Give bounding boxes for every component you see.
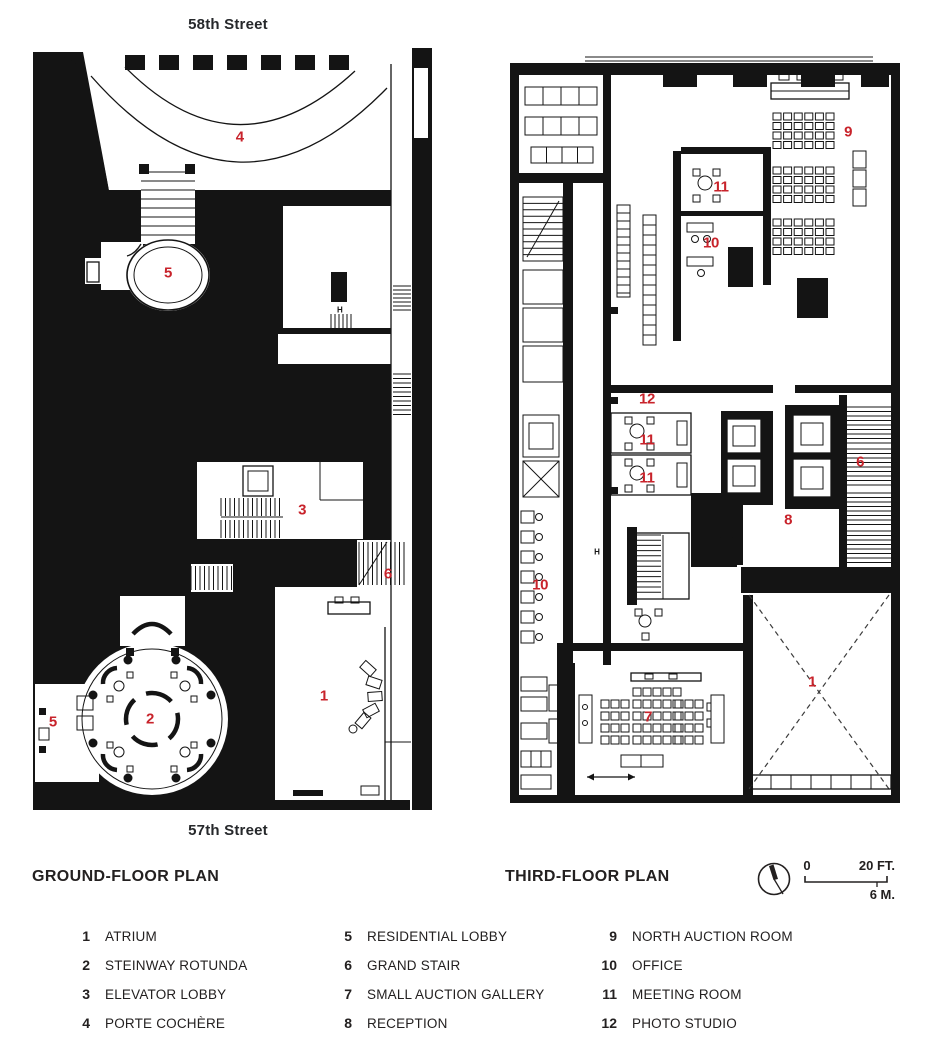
legend-item-number: 7 (330, 986, 352, 1002)
legend-item-label: PHOTO STUDIO (632, 1016, 737, 1031)
legend-item: 12PHOTO STUDIO (595, 1015, 793, 1044)
legend-item: 6GRAND STAIR (330, 957, 545, 986)
street-label-57th: 57th Street (118, 822, 338, 839)
scale-bar: 0 20 FT. 6 M. (750, 848, 920, 908)
legend-column-2: 5RESIDENTIAL LOBBY6GRAND STAIR7SMALL AUC… (330, 928, 545, 1044)
legend-item-label: SMALL AUCTION GALLERY (367, 987, 545, 1002)
legend-item: 8RECEPTION (330, 1015, 545, 1044)
legend-item-number: 5 (330, 928, 352, 944)
legend-item-number: 1 (68, 928, 90, 944)
ground-floor-plan-drawing: 4536125H (25, 42, 435, 822)
legend-item-number: 2 (68, 957, 90, 973)
legend-item-label: ATRIUM (105, 929, 157, 944)
third-plan-title: THIRD-FLOOR PLAN (505, 868, 670, 886)
scale-zero-label: 0 (803, 858, 810, 873)
legend-item-number: 10 (595, 957, 617, 973)
scale-feet-label: 20 FT. (859, 858, 895, 873)
legend-item-label: RECEPTION (367, 1016, 448, 1031)
legend-item-label: NORTH AUCTION ROOM (632, 929, 793, 944)
legend-item: 9NORTH AUCTION ROOM (595, 928, 793, 957)
third-floor-plan-svg (505, 55, 905, 810)
legend-column-1: 1ATRIUM2STEINWAY ROTUNDA3ELEVATOR LOBBY4… (68, 928, 247, 1044)
legend-item: 10OFFICE (595, 957, 793, 986)
legend-item: 7SMALL AUCTION GALLERY (330, 986, 545, 1015)
legend-item: 2STEINWAY ROTUNDA (68, 957, 247, 986)
legend-item-label: RESIDENTIAL LOBBY (367, 929, 507, 944)
legend-item-label: STEINWAY ROTUNDA (105, 958, 247, 973)
legend-item: 1ATRIUM (68, 928, 247, 957)
third-floor-plan-drawing: 91110121111681071H (505, 55, 905, 810)
legend-item-label: ELEVATOR LOBBY (105, 987, 226, 1002)
legend-column-3: 9NORTH AUCTION ROOM10OFFICE11MEETING ROO… (595, 928, 793, 1044)
legend-item-label: GRAND STAIR (367, 958, 460, 973)
corridor-stair (393, 286, 411, 310)
legend-item: 11MEETING ROOM (595, 986, 793, 1015)
legend-item-number: 4 (68, 1015, 90, 1031)
scale-meters-label: 6 M. (870, 887, 895, 902)
legend-item-number: 11 (595, 986, 617, 1002)
ground-floor-plan-svg (25, 42, 435, 822)
legend-item-number: 12 (595, 1015, 617, 1031)
legend-item-label: OFFICE (632, 958, 683, 973)
legend-item: 5RESIDENTIAL LOBBY (330, 928, 545, 957)
legend-item: 3ELEVATOR LOBBY (68, 986, 247, 1015)
legend-item-number: 9 (595, 928, 617, 944)
street-label-58th: 58th Street (118, 16, 338, 33)
legend-item-label: MEETING ROOM (632, 987, 742, 1002)
legend-item-number: 6 (330, 957, 352, 973)
magazine-floor-plan-page: { "page_type": "architectural floor plan… (0, 0, 925, 1058)
legend-item-label: PORTE COCHÈRE (105, 1016, 225, 1031)
ground-plan-title: GROUND-FLOOR PLAN (32, 868, 219, 886)
legend-item: 4PORTE COCHÈRE (68, 1015, 247, 1044)
legend-item-number: 3 (68, 986, 90, 1002)
legend-item-number: 8 (330, 1015, 352, 1031)
north-arrow-compass-icon (759, 864, 790, 895)
